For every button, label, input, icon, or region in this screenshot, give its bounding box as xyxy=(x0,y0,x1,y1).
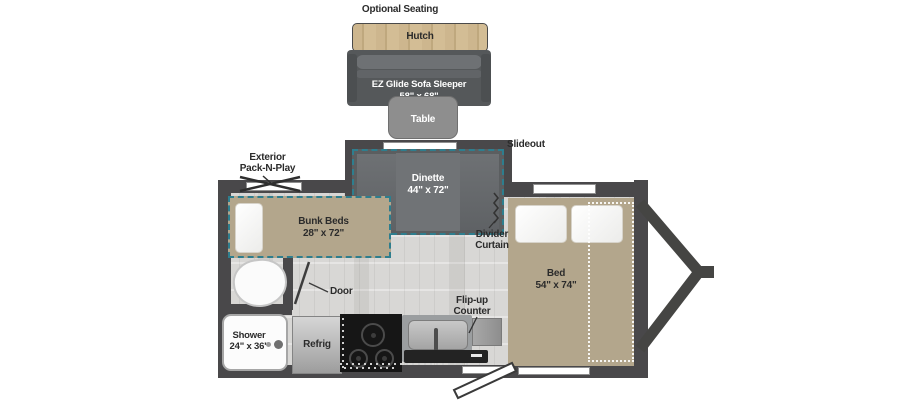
packnplay-label-line2: Pack-N-Play xyxy=(225,163,310,174)
bunk-beds: Bunk Beds 28" x 72" xyxy=(228,196,391,258)
divider-label-line1: Divider xyxy=(464,229,520,240)
optional-seating-title: Optional Seating xyxy=(330,4,470,15)
packnplay-label-line1: Exterior xyxy=(225,152,310,163)
slideout-label: Slideout xyxy=(507,139,577,150)
oven-drawer xyxy=(404,350,488,363)
bedroom-window-bottom xyxy=(518,367,590,375)
bed-name: Bed xyxy=(508,268,604,279)
bunk-name: Bunk Beds xyxy=(258,216,389,227)
shower-drain-icon xyxy=(266,342,271,347)
table-label: Table xyxy=(389,114,457,125)
burner-icon xyxy=(361,323,385,347)
cabinet-trim-dots xyxy=(340,363,472,365)
hitch-frame xyxy=(640,203,699,349)
door-label: Door xyxy=(330,286,370,297)
hitch-coupler-icon xyxy=(697,266,714,278)
cooktop-trim-dots xyxy=(344,367,398,369)
wall-right xyxy=(634,180,648,378)
entry-door-threshold xyxy=(462,366,512,374)
shower: Shower 24" x 36" xyxy=(222,314,288,371)
burner-icon xyxy=(349,349,368,368)
oven-handle-icon xyxy=(471,354,482,357)
flipup-label-line1: Flip-up xyxy=(443,295,501,306)
hutch: Hutch xyxy=(352,23,488,52)
sofa-name: EZ Glide Sofa Sleeper xyxy=(347,80,491,91)
floorplan-canvas: Optional Seating Hutch EZ Glide Sofa Sle… xyxy=(0,0,900,400)
bed: Bed 54" x 74" xyxy=(508,198,634,366)
flipup-label-line2: Counter xyxy=(443,306,501,317)
bed-size: 54" x 74" xyxy=(508,280,604,291)
refrigerator: Refrig xyxy=(292,316,342,374)
burner-icon xyxy=(375,349,394,368)
bed-pillow xyxy=(515,205,567,243)
sofa-seat-cushion xyxy=(356,70,482,78)
bedroom-window-top xyxy=(533,184,596,194)
dining-table: Table xyxy=(388,96,458,139)
divider-label-line2: Curtain xyxy=(464,240,520,251)
bunk-size: 28" x 72" xyxy=(258,228,389,239)
shower-head-icon xyxy=(274,340,283,349)
dinette-name: Dinette xyxy=(354,173,502,184)
flip-up-counter xyxy=(472,318,502,346)
sofa-back-cushion xyxy=(356,55,482,69)
hutch-label: Hutch xyxy=(353,31,487,42)
cooktop-trim-dots xyxy=(342,318,344,368)
sink xyxy=(408,320,468,350)
refrig-label: Refrig xyxy=(293,339,341,350)
packnplay-opening xyxy=(246,182,302,191)
dinette-size: 44" x 72" xyxy=(354,185,502,196)
